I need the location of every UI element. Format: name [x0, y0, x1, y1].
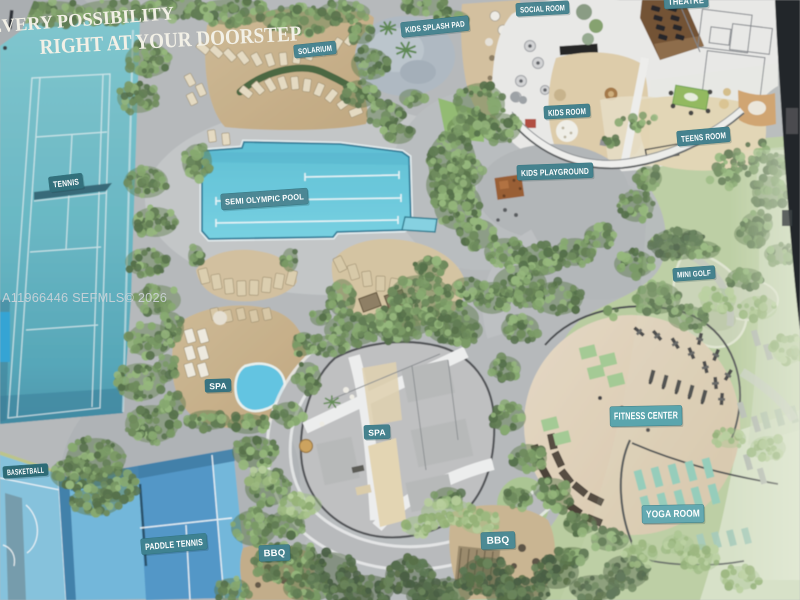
svg-text:SPA: SPA: [209, 381, 227, 392]
svg-text:FITNESS CENTER: FITNESS CENTER: [614, 410, 679, 422]
svg-text:A11966446 SEFMLS© 2026: A11966446 SEFMLS© 2026: [2, 290, 167, 305]
svg-text:BBQ: BBQ: [486, 535, 509, 547]
svg-text:SPA: SPA: [368, 427, 386, 438]
svg-text:BBQ: BBQ: [263, 548, 285, 560]
svg-text:KIDS ROOM: KIDS ROOM: [548, 106, 586, 118]
svg-text:YOGA ROOM: YOGA ROOM: [646, 509, 700, 521]
